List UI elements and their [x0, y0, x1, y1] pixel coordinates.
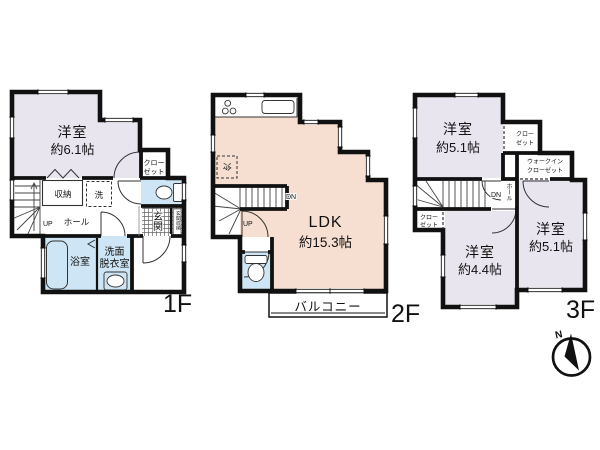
stairs-3f	[415, 181, 485, 208]
label-room-top-name: 洋室	[443, 121, 473, 137]
label-bath: 浴室	[70, 255, 90, 268]
label-room-right-size: 約5.1帖	[529, 239, 573, 254]
label-fridge: 冷	[222, 163, 232, 172]
floor-2f: 冷	[210, 92, 420, 328]
label-room-top-size: 約5.1帖	[436, 140, 480, 155]
label-washroom-line1: 洗面	[105, 246, 125, 258]
label-wic-line2: クローゼット	[527, 167, 563, 175]
label-entrance: 玄関	[151, 210, 163, 232]
toilet-vestibule-2f	[240, 237, 272, 252]
floorplan-canvas: 洋室 約6.1帖 収納 洗 UP ホール クロー ゼット 玄関 玄関収納 浴室 …	[0, 0, 600, 450]
label-dn-2f: DN	[286, 194, 296, 201]
label-washer: 洗	[95, 190, 104, 200]
label-room-mid-size: 約4.4帖	[458, 262, 502, 277]
floor-label-3f: 3F	[566, 296, 595, 324]
label-dn-3f: DN	[491, 192, 501, 199]
compass: N	[553, 329, 590, 375]
label-ldk-size: 約15.3帖	[299, 235, 352, 250]
label-balcony: バルコニー	[294, 300, 361, 314]
label-up-1f: UP	[43, 221, 53, 228]
label-closet-left-line2: ゼット	[420, 221, 438, 229]
label-hall-1f: ホール	[64, 217, 90, 227]
floorplan-svg: 洋室 約6.1帖 収納 洗 UP ホール クロー ゼット 玄関 玄関収納 浴室 …	[0, 0, 600, 450]
label-closet-1f-line1: クロー	[144, 159, 165, 167]
label-wic-line1: ウォークイン	[527, 158, 563, 166]
compass-north-label: N	[554, 329, 563, 341]
floor-label-1f: 1F	[163, 290, 192, 318]
label-room-mid-name: 洋室	[465, 244, 495, 260]
label-ldk-name: LDK	[308, 214, 342, 231]
stairs-1f	[12, 178, 40, 236]
label-closet-left-line1: クロー	[420, 215, 438, 222]
label-entrance-storage: 玄関収納	[175, 210, 180, 231]
label-room-6-1-name: 洋室	[58, 124, 88, 140]
label-room-6-1-size: 約6.1帖	[50, 142, 94, 157]
floor-3f: 洋室 約5.1帖 クロー ゼット ウォークイン クローゼット DN ホール クロ…	[412, 92, 595, 324]
stairwell-2f-run	[240, 186, 287, 209]
label-room-right-name: 洋室	[536, 221, 566, 237]
label-closet-top-line2: ゼット	[516, 139, 534, 147]
label-closet-1f-line2: ゼット	[144, 167, 165, 176]
label-hall-3f: ホール	[505, 183, 512, 201]
label-storage: 収納	[54, 189, 71, 199]
floor-1f: 洋室 約6.1帖 収納 洗 UP ホール クロー ゼット 玄関 玄関収納 浴室 …	[9, 89, 192, 318]
label-closet-top-line1: クロー	[516, 131, 534, 138]
label-up-2f: UP	[243, 221, 253, 228]
label-washroom-line2: 脱衣室	[100, 257, 130, 270]
floor-label-2f: 2F	[391, 300, 420, 328]
